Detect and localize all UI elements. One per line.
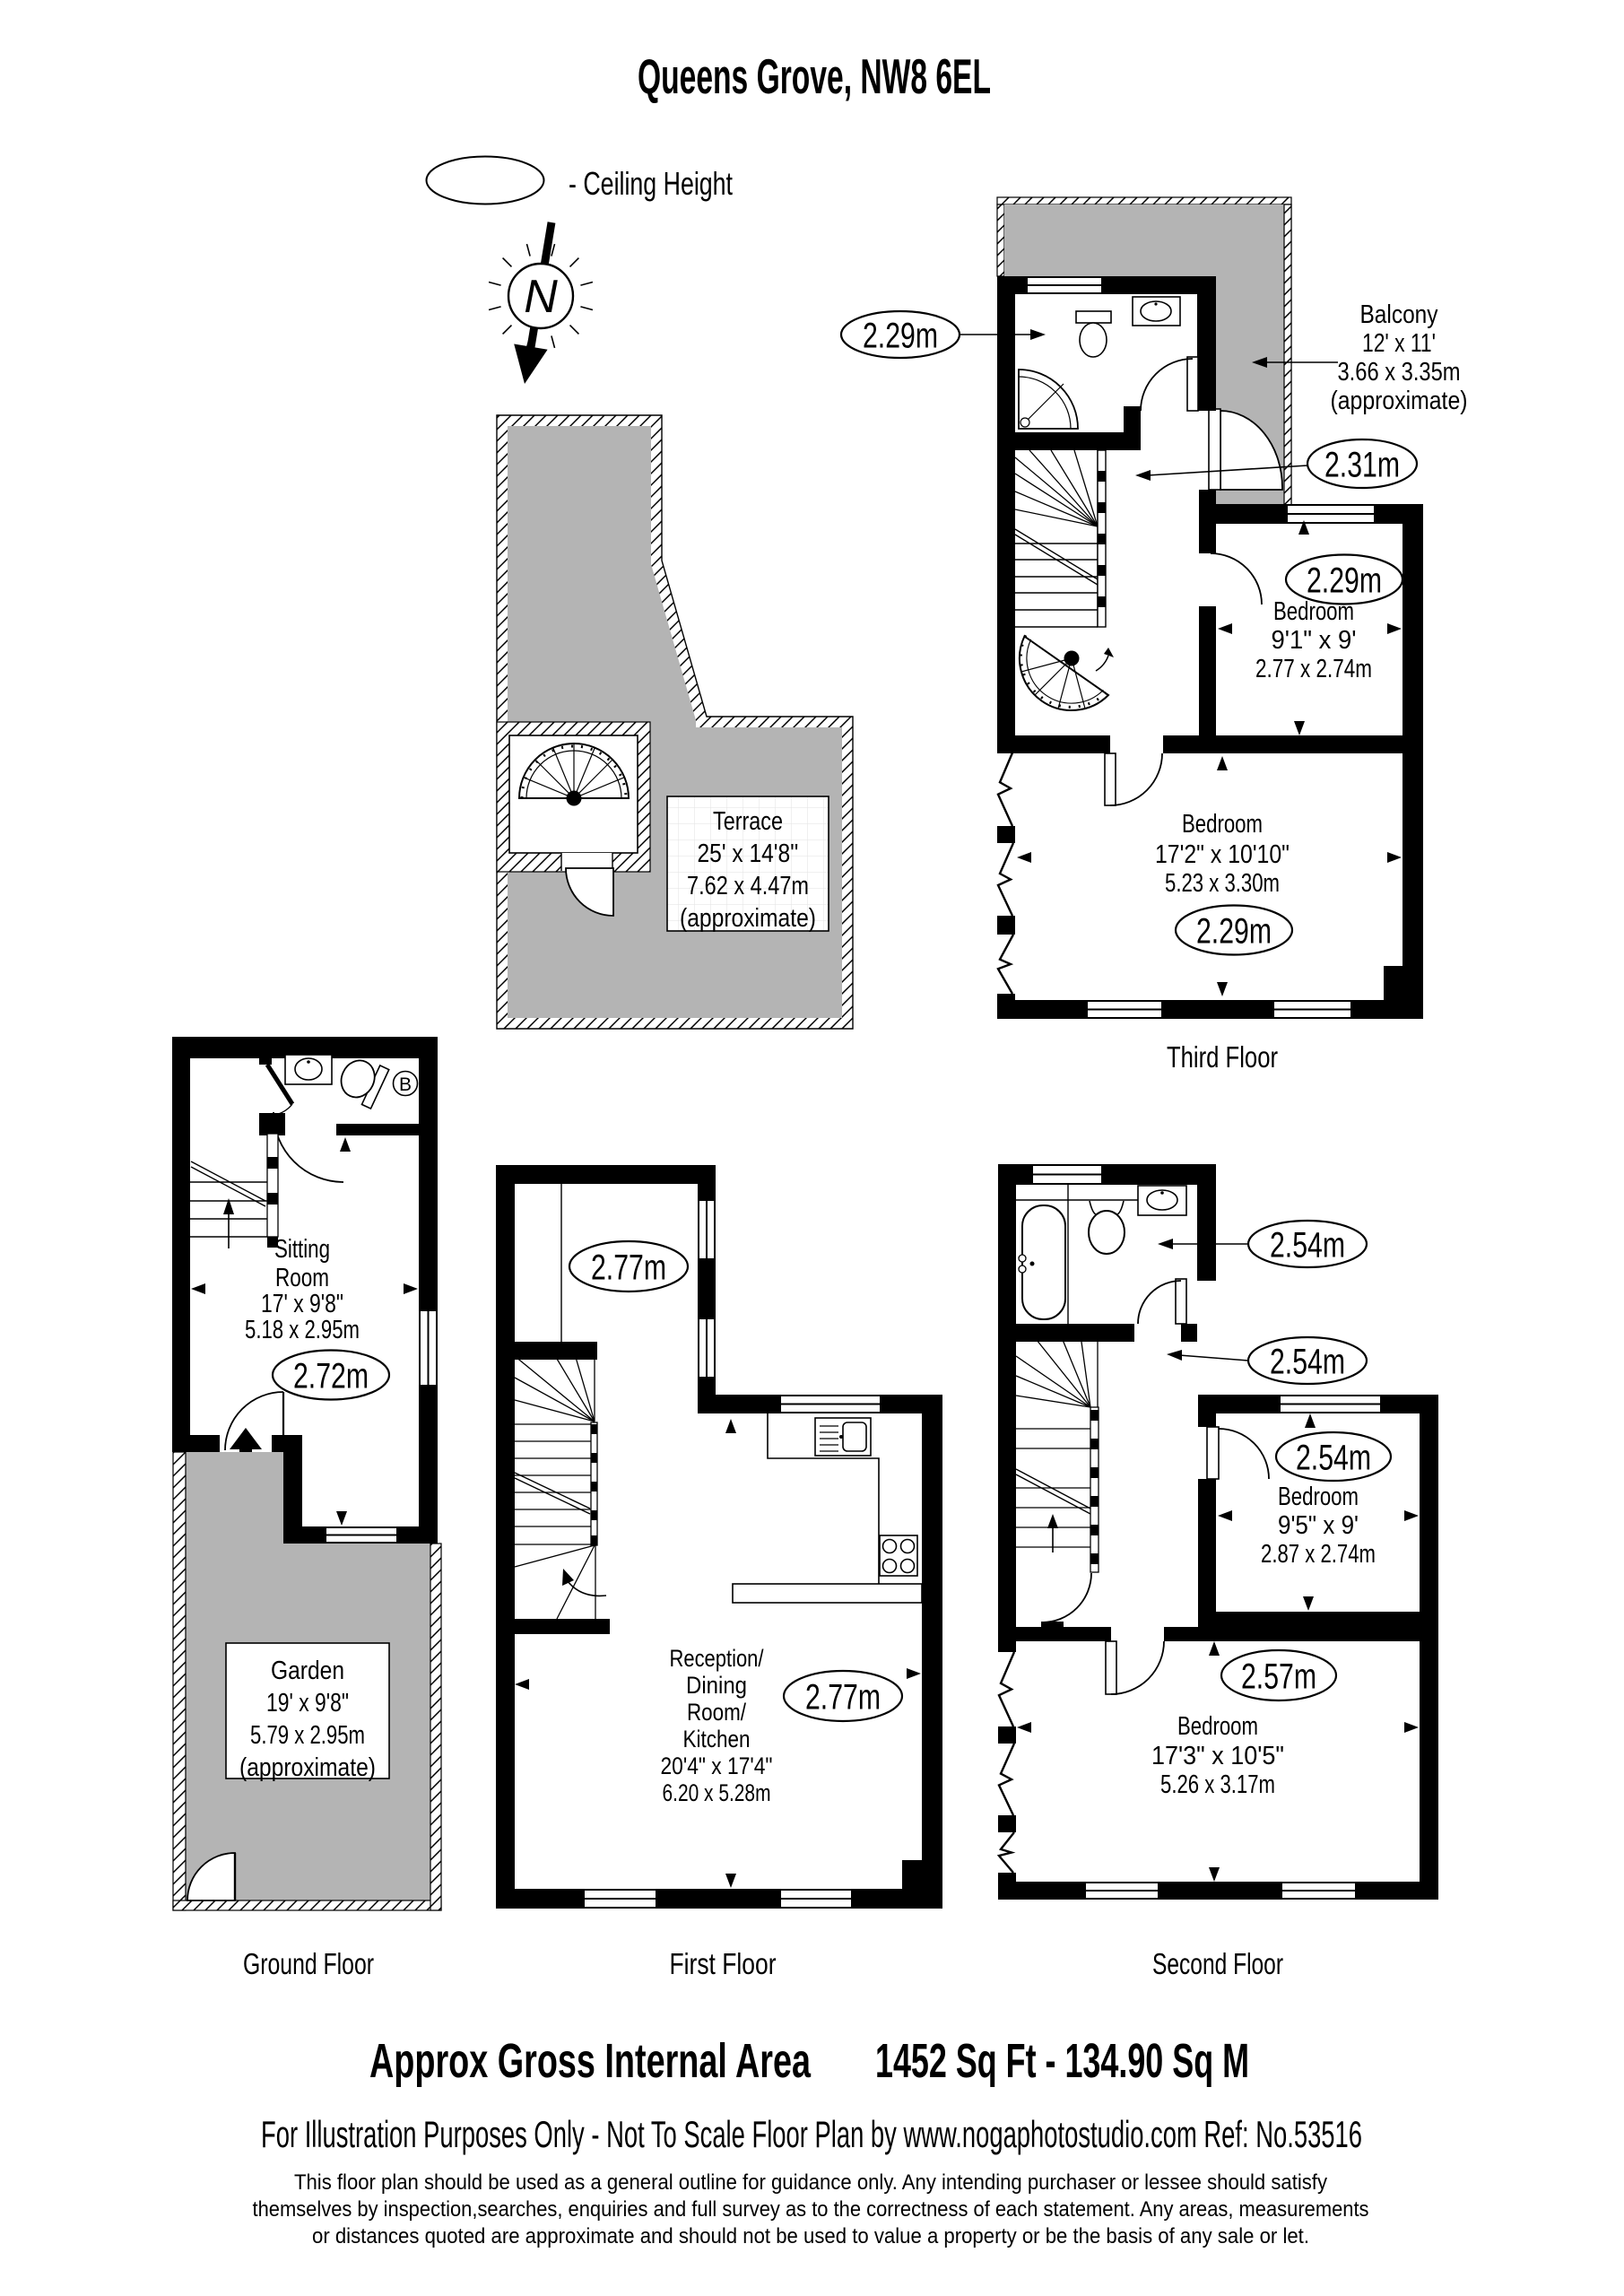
svg-text:2.31m: 2.31m [1324,445,1400,484]
svg-text:2.77m: 2.77m [591,1248,666,1287]
svg-text:Second Floor: Second Floor [1152,1947,1283,1980]
svg-text:or distances quoted are approx: or distances quoted are approximate and … [312,2224,1309,2248]
svg-text:2.29m: 2.29m [1196,911,1272,951]
svg-text:Third Floor: Third Floor [1167,1040,1278,1074]
svg-text:N: N [524,271,558,323]
svg-text:2.29m: 2.29m [863,316,938,355]
svg-text:5.18 x 2.95m: 5.18 x 2.95m [245,1316,360,1344]
svg-text:2.72m: 2.72m [293,1356,369,1396]
svg-text:Terrace: Terrace [713,807,783,836]
svg-text:Bedroom: Bedroom [1177,1712,1258,1741]
svg-text:This floor plan should be used: This floor plan should be used as a gene… [294,2170,1327,2195]
svg-text:Bedroom: Bedroom [1182,810,1263,839]
svg-text:Room/: Room/ [687,1699,746,1726]
svg-text:17'3" x 10'5": 17'3" x 10'5" [1151,1742,1284,1770]
svg-text:Reception/: Reception/ [670,1645,764,1672]
svg-text:2.54m: 2.54m [1270,1342,1345,1381]
svg-text:2.87 x 2.74m: 2.87 x 2.74m [1261,1540,1376,1569]
svg-text:12' x 11': 12' x 11' [1362,329,1436,358]
svg-text:Queens Grove, NW8 6EL: Queens Grove, NW8 6EL [638,48,991,104]
svg-text:2.77m: 2.77m [805,1677,881,1717]
svg-text:Bedroom: Bedroom [1278,1483,1359,1511]
svg-text:3.66 x 3.35m: 3.66 x 3.35m [1338,358,1461,387]
svg-text:17'2" x 10'10": 17'2" x 10'10" [1155,840,1290,869]
svg-text:- Ceiling Height: - Ceiling Height [569,165,733,202]
svg-text:Sitting: Sitting [274,1235,330,1264]
svg-text:Balcony: Balcony [1360,300,1438,329]
svg-text:Approx Gross Internal Area: Approx Gross Internal Area [369,2034,812,2088]
svg-text:20'4" x 17'4": 20'4" x 17'4" [661,1752,773,1779]
svg-text:Ground Floor: Ground Floor [243,1947,374,1980]
svg-text:Room: Room [275,1264,329,1292]
svg-text:Garden: Garden [271,1657,344,1685]
svg-text:For Illustration Purposes Only: For Illustration Purposes Only - Not To … [261,2113,1362,2155]
svg-text:5.26 x 3.17m: 5.26 x 3.17m [1160,1770,1275,1799]
svg-text:5.23 x 3.30m: 5.23 x 3.30m [1165,869,1280,898]
svg-text:Kitchen: Kitchen [683,1726,751,1752]
svg-text:9'5" x 9': 9'5" x 9' [1278,1511,1359,1540]
svg-text:(approximate): (approximate) [239,1753,376,1782]
svg-text:9'1" x 9': 9'1" x 9' [1272,626,1357,655]
svg-text:1452 Sq Ft - 134.90 Sq M: 1452 Sq Ft - 134.90 Sq M [875,2034,1249,2088]
svg-text:(approximate): (approximate) [680,904,816,933]
svg-text:17' x 9'8": 17' x 9'8" [261,1290,343,1318]
svg-text:2.54m: 2.54m [1270,1225,1345,1265]
svg-text:(approximate): (approximate) [1331,387,1468,415]
svg-text:5.79 x 2.95m: 5.79 x 2.95m [250,1721,365,1750]
svg-text:Dining: Dining [686,1672,747,1699]
svg-text:2.54m: 2.54m [1296,1438,1371,1477]
svg-text:19' x 9'8": 19' x 9'8" [266,1689,349,1718]
svg-text:2.77 x 2.74m: 2.77 x 2.74m [1255,655,1372,683]
svg-text:themselves by inspection,searc: themselves by inspection,searches, enqui… [253,2197,1369,2222]
svg-text:B: B [399,1074,412,1095]
svg-text:25' x 14'8'': 25' x 14'8'' [698,839,799,868]
svg-text:7.62 x 4.47m: 7.62 x 4.47m [687,872,809,900]
svg-text:2.57m: 2.57m [1241,1657,1316,1696]
svg-text:2.29m: 2.29m [1307,561,1382,600]
svg-text:First Floor: First Floor [670,1947,777,1980]
svg-text:6.20 x 5.28m: 6.20 x 5.28m [663,1779,771,1806]
